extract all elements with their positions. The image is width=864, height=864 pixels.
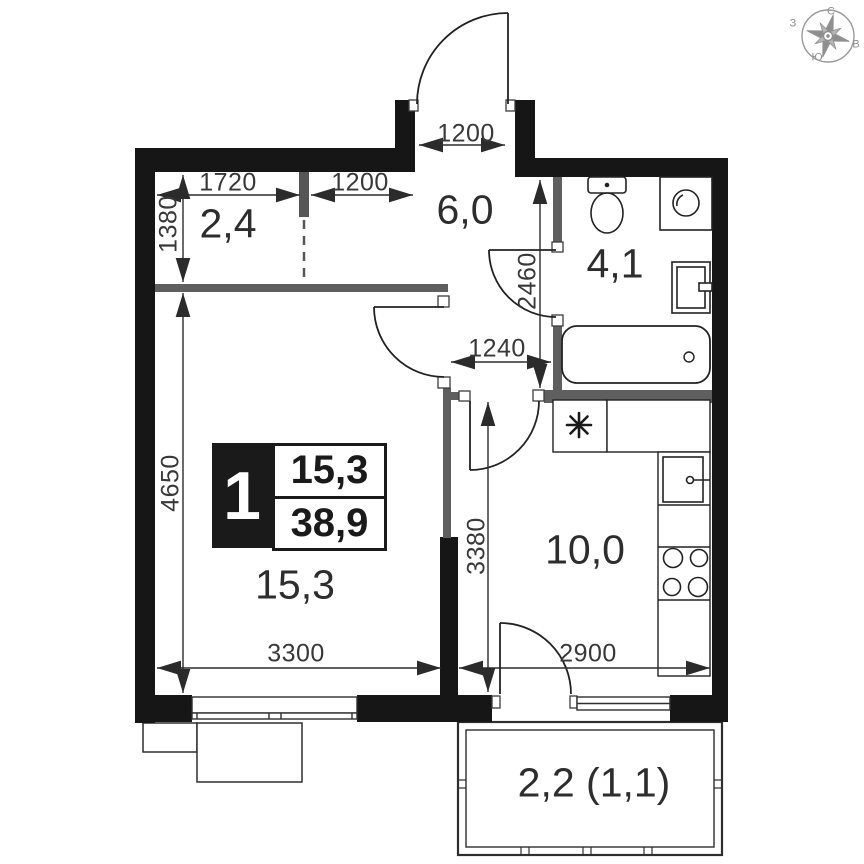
- dim-corridor-depth: 2460: [516, 252, 541, 310]
- window-kitchen: [577, 697, 670, 710]
- badge-total-area: 38,9: [272, 496, 387, 552]
- room-label-corridor: 6,0: [437, 190, 494, 231]
- kitchen-door: [470, 401, 539, 470]
- ventilation-icon: [553, 400, 607, 452]
- floor-plan: 2,4 6,0 4,1 15,3 10,0 2,2 (1,1) 1720 120…: [0, 0, 864, 864]
- room-label-balcony: 2,2 (1,1): [518, 763, 671, 804]
- toilet-icon: [588, 177, 626, 233]
- bathtub-icon: [562, 326, 710, 383]
- dim-hall-entry: 1200: [331, 171, 389, 196]
- compass-west-label: З: [790, 19, 797, 30]
- floor-plan-drawing: [0, 0, 864, 864]
- compass-south-label: Ю: [811, 53, 822, 64]
- living-room-door: [374, 307, 444, 377]
- dim-hall-depth: 1380: [157, 195, 182, 253]
- dim-kitchen-height: 3380: [465, 517, 490, 575]
- entrance-door: [417, 13, 508, 104]
- dim-hall-width: 1720: [199, 171, 257, 196]
- dim-corridor-width: 1240: [468, 337, 526, 362]
- compass-north-label: С: [827, 7, 835, 18]
- window-ledge: [143, 723, 302, 782]
- apartment-badge: 1 15,3 38,9: [212, 443, 384, 548]
- kitchen-sink-icon: [663, 457, 710, 502]
- badge-living-area: 15,3: [272, 443, 387, 499]
- dim-living-height: 4650: [159, 454, 184, 512]
- badge-room-count: 1: [212, 443, 272, 548]
- room-label-kitchen: 10,0: [545, 530, 625, 571]
- compass-east-label: В: [852, 40, 859, 51]
- dim-entrance-width: 1200: [437, 122, 495, 147]
- sink-icon: [672, 262, 712, 313]
- room-label-living: 15,3: [255, 565, 335, 606]
- room-label-hall: 2,4: [200, 204, 257, 245]
- dim-kitchen-width: 2900: [559, 642, 617, 667]
- dim-living-width: 3300: [267, 642, 325, 667]
- washing-machine-icon: [660, 177, 712, 230]
- window-left: [192, 697, 357, 719]
- room-label-bathroom: 4,1: [587, 244, 644, 285]
